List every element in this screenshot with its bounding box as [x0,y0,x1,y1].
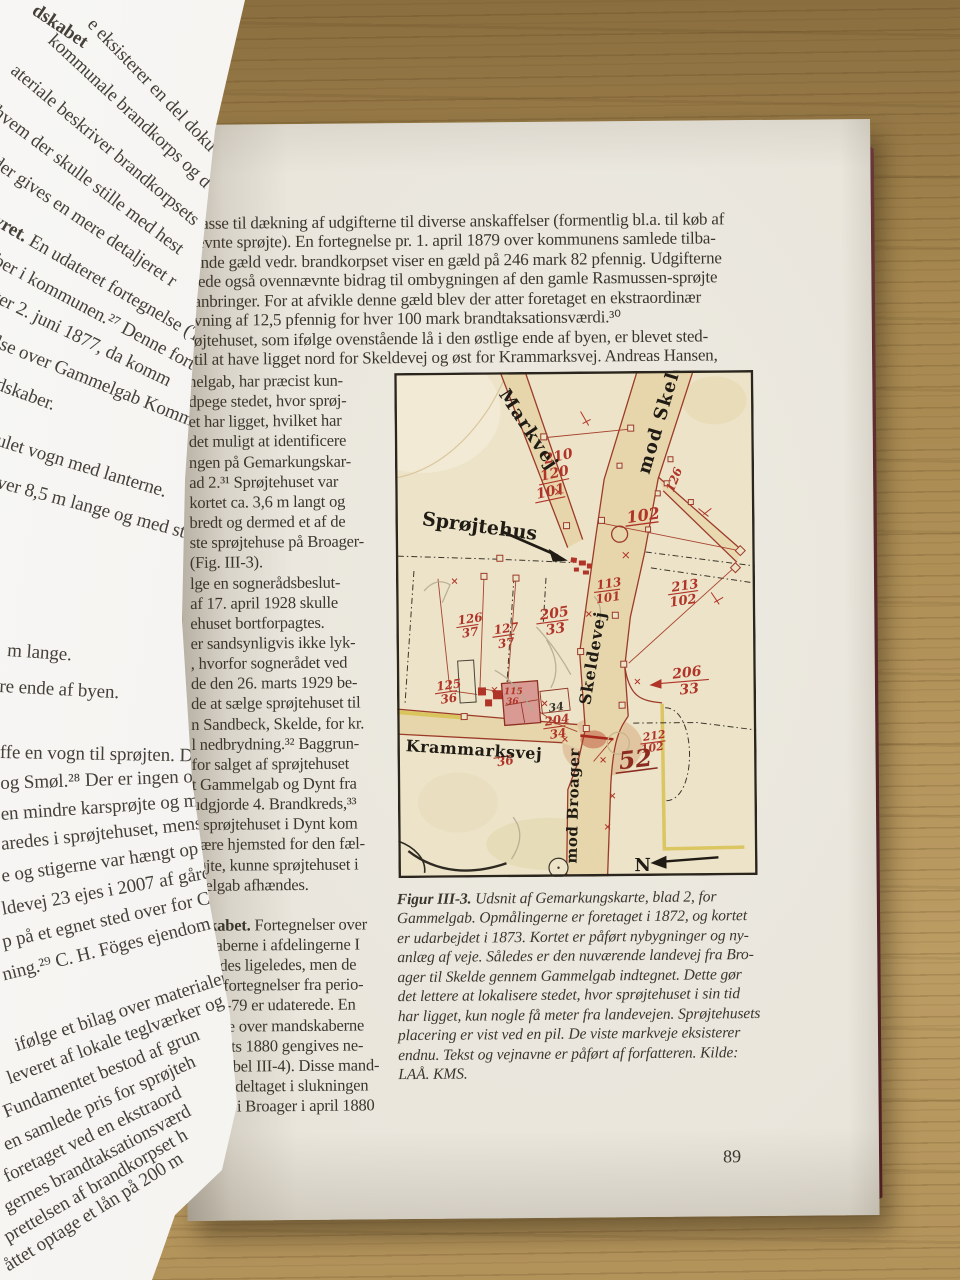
column-line: for salget af sprøjtehuset [192,754,350,775]
column-line: l nedbrydning.³² Baggrun- [191,733,359,754]
column-line: lge en sognerådsbeslut- [190,573,340,594]
column-line: kortet ca. 3,6 m langt og [189,492,345,513]
figure-caption-line: LAÅ. KMS. [398,1066,467,1085]
left-page-line: m lange. [6,640,72,666]
figure-label: Figur III-3. [397,891,472,909]
column-line: være hjemsted for den fæl- [192,833,365,855]
column-line: røjte, kunne sprøjtehuset i [192,854,358,875]
parcel-number: 37 [497,635,516,651]
column-line: ste sprøjtehuse på Broager- [190,531,365,553]
left-page-line: re ende af byen. [0,676,120,704]
parcel-number: 115 [504,687,523,697]
column-line: et har ligget, hvilket har [189,411,342,432]
left-page-line: dskaber. [0,374,58,416]
caption-rest: Udsnit af Gemarkungskarte, blad 2, for [475,888,716,907]
column-line: t Gammelgab og Dynt fra [192,774,357,795]
right-book-page: kasse til dækning af udgifterne til dive… [178,119,880,1221]
paragraph-line: til at have ligget nord for Skeldevej og… [194,345,718,370]
column-line: nelgab, har præcist kun- [188,371,343,392]
column-line: de den 26. marts 1929 be- [191,672,358,693]
figure-caption-line: anlæg af veje. Således er den nuværende … [397,946,754,967]
column-line: dpege stedet, hvor sprøj- [188,391,346,412]
label-north: N [634,855,651,876]
column-line: bredt og dermed et af de [189,512,345,533]
parcel-number: 36 [506,697,519,707]
column-line-rest: Fortegnelser over [254,914,367,934]
label-mod-broager: mod Broager [562,747,583,863]
figure-caption-line: endnu. Tekst og vejnavne er påført af fo… [398,1044,738,1065]
book-photo: kasse til dækning af udgifterne til dive… [0,0,960,1280]
column-line: melgab afhændes. [193,875,309,896]
left-page-lead: yret. [0,210,32,246]
parcel-number: 33 [679,681,700,699]
column-line: ehuset bortforpagtes. [190,613,324,634]
column-line: a sprøjtehuset i Dynt kom [192,813,358,834]
figure-caption-line: det lettere at lokalisere stedet, hvor s… [398,985,740,1006]
page-number: 89 [723,1146,741,1167]
column-line: ngen på Gemarkungskar- [189,452,351,473]
column-line: ad 2.³¹ Sprøjtehuset var [189,472,338,493]
column-line: er sandsynligvis ikke lyk- [190,633,355,654]
column-line: (Fig. III-3). [190,552,263,573]
figure-caption-line: Gammelgab. Opmålingerne er foretaget i 1… [397,907,747,928]
figure-caption-line: ager til Skelde gennem Gammelgab indtegn… [397,966,741,987]
figure-caption-line: har ligget, kun nogle få meter fra lande… [398,1005,761,1026]
figure-caption-line: placering er vist ved en pil. De viste m… [398,1024,740,1045]
column-line: de at sælge sprøjtehuset til [191,692,361,713]
column-line: udgjorde 4. Brandkreds,³³ [192,794,357,815]
column-line: , hvorfor sognerådet ved [191,653,348,674]
column-line: det muligt at identificere [189,431,347,452]
figure-caption-line: Figur III-3. Udsnit af Gemarkungskarte, … [397,888,717,909]
column-line: n Sandbeck, Skelde, for kr. [191,713,364,735]
figure-map: 210 120 101 102 126 113 101 213 102 205 … [394,370,757,878]
figure-caption-line: er udarbejdet i 1873. Kortet er påført n… [397,927,749,948]
column-line: af 17. april 1928 skulle [190,593,338,614]
column-line: dskabet. Fortegnelser over [193,914,367,936]
